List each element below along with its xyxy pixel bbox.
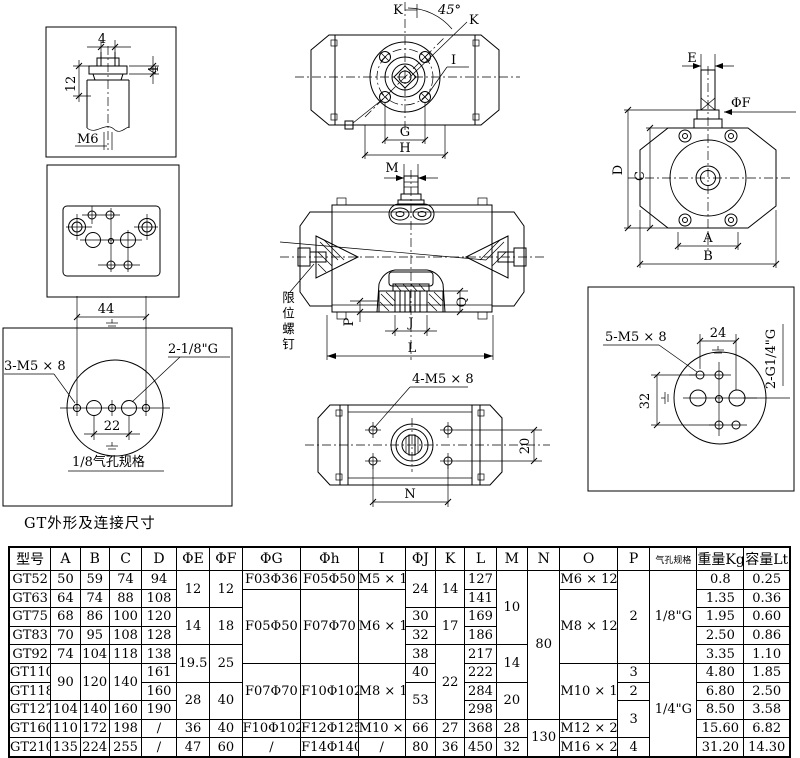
column-header: D bbox=[142, 547, 177, 571]
value-cell: 140 bbox=[109, 663, 141, 700]
value-cell: 27 bbox=[436, 719, 465, 738]
value-cell: 74 bbox=[109, 571, 141, 590]
dim-b: B bbox=[703, 249, 713, 264]
page-title: GT外形及连接尺寸 bbox=[24, 512, 156, 533]
value-cell: 15.60 bbox=[697, 719, 744, 738]
value-cell: 0.86 bbox=[744, 626, 790, 645]
column-header: M bbox=[496, 547, 527, 571]
value-cell: M12 × 20 bbox=[560, 719, 618, 738]
dim-q: Q bbox=[455, 297, 470, 308]
value-cell: 118 bbox=[109, 645, 141, 664]
model-cell: GT210 bbox=[9, 738, 51, 757]
value-cell: M5 × 10 bbox=[358, 571, 405, 590]
value-cell: 20 bbox=[496, 682, 527, 719]
value-cell: 19.5 bbox=[176, 645, 209, 682]
column-header: ΦF bbox=[210, 547, 242, 571]
value-cell: 120 bbox=[80, 663, 109, 700]
value-cell: / bbox=[242, 738, 301, 757]
value-cell: 17 bbox=[436, 608, 465, 645]
value-cell: 127 bbox=[465, 571, 496, 590]
value-cell: 138 bbox=[142, 645, 177, 664]
value-cell: 6.82 bbox=[744, 719, 790, 738]
value-cell: 141 bbox=[465, 589, 496, 608]
value-cell: 95 bbox=[80, 626, 109, 645]
value-cell: 450 bbox=[465, 738, 496, 757]
value-cell: 3 bbox=[617, 663, 649, 682]
drawing-end-view: E ΦF D C bbox=[598, 50, 798, 280]
table-row: GT52505974941212F03Φ36F05Φ50M5 × 1024141… bbox=[9, 571, 790, 590]
value-cell: 40 bbox=[405, 663, 435, 682]
value-cell: M10 × 16 bbox=[560, 663, 618, 719]
model-cell: GT75 bbox=[9, 608, 51, 627]
value-cell: M6 × 12 bbox=[560, 571, 618, 590]
column-header: C bbox=[109, 547, 141, 571]
value-cell: 100 bbox=[109, 608, 141, 627]
table-header: 型号ABCDΦEΦFΦGΦhIΦJKLMNOP气孔规格重量Kg容量Lt bbox=[9, 547, 790, 571]
value-cell: F14Φ140 bbox=[301, 738, 359, 757]
dim-h: H bbox=[399, 141, 410, 156]
value-cell: 18 bbox=[210, 608, 242, 645]
value-cell: 12 bbox=[176, 571, 209, 608]
value-cell: 222 bbox=[465, 663, 496, 682]
value-cell: F07Φ70 bbox=[242, 663, 301, 719]
dim-d: D bbox=[611, 165, 626, 175]
value-cell: 22 bbox=[436, 645, 465, 719]
value-cell: 40 bbox=[210, 719, 242, 738]
value-cell: 1.95 bbox=[697, 608, 744, 627]
value-cell: 224 bbox=[80, 738, 109, 757]
value-cell: 2 bbox=[617, 682, 649, 701]
value-cell: 161 bbox=[142, 663, 177, 682]
column-header: B bbox=[80, 547, 109, 571]
dim-32: 32 bbox=[638, 393, 653, 410]
value-cell: 1.10 bbox=[744, 645, 790, 664]
value-cell: 50 bbox=[51, 571, 80, 590]
header-row: 型号ABCDΦEΦFΦGΦhIΦJKLMNOP气孔规格重量Kg容量Lt bbox=[9, 547, 790, 571]
column-header: P bbox=[617, 547, 649, 571]
value-cell: 60 bbox=[210, 738, 242, 757]
column-header: Φh bbox=[301, 547, 359, 571]
dim-f: ΦF bbox=[731, 96, 751, 111]
value-cell: 88 bbox=[109, 589, 141, 608]
value-cell: M10 × 16 bbox=[358, 719, 405, 738]
table-body: GT52505974941212F03Φ36F05Φ50M5 × 1024141… bbox=[9, 571, 790, 757]
value-cell: 32 bbox=[496, 738, 527, 757]
dim-n: N bbox=[404, 487, 415, 502]
value-cell: 30 bbox=[405, 608, 435, 627]
drawing-air-ports-large: 24 32 5-M5 × 8 2-G1/4"G bbox=[585, 284, 797, 494]
value-cell: M16 × 25 bbox=[560, 738, 618, 757]
dim-44: 44 bbox=[98, 302, 115, 317]
datasheet-page: 4 12 4 M6 bbox=[0, 0, 800, 758]
port-spec-label: 2-1/8"G bbox=[168, 342, 218, 357]
value-cell: 24 bbox=[405, 571, 435, 608]
value-cell: 40 bbox=[210, 682, 242, 719]
model-cell: GT83 bbox=[9, 626, 51, 645]
value-cell: 0.25 bbox=[744, 571, 790, 590]
value-cell: 2.50 bbox=[697, 626, 744, 645]
value-cell: 70 bbox=[51, 626, 80, 645]
dim-20: 20 bbox=[518, 438, 533, 455]
value-cell: 0.60 bbox=[744, 608, 790, 627]
value-cell: 4.80 bbox=[697, 663, 744, 682]
dim-l: L bbox=[408, 341, 417, 356]
value-cell: 0.8 bbox=[697, 571, 744, 590]
dim-g: G bbox=[400, 125, 410, 140]
value-cell: 53 bbox=[405, 682, 435, 719]
dim-k: K bbox=[393, 3, 403, 18]
value-cell: 28 bbox=[176, 682, 209, 719]
value-cell: F03Φ36 bbox=[242, 571, 301, 590]
value-cell: / bbox=[142, 719, 177, 738]
value-cell: 3.58 bbox=[744, 701, 790, 720]
value-cell: 36 bbox=[176, 719, 209, 738]
angle-45: 45° bbox=[437, 3, 461, 18]
value-cell: M8 × 12 bbox=[358, 663, 405, 719]
column-header: I bbox=[358, 547, 405, 571]
value-cell: 368 bbox=[465, 719, 496, 738]
drawing-shaft-top-detail: 4 12 4 M6 bbox=[45, 26, 177, 158]
value-cell: F12Φ125 bbox=[301, 719, 359, 738]
value-cell: F05Φ50 bbox=[242, 589, 301, 663]
value-cell: 3 bbox=[617, 701, 649, 738]
model-cell: GT92 bbox=[9, 645, 51, 664]
value-cell: M6 × 10 bbox=[358, 589, 405, 663]
spec-table: 型号ABCDΦEΦFΦGΦhIΦJKLMNOP气孔规格重量Kg容量Lt GT52… bbox=[8, 546, 791, 758]
value-cell: 12 bbox=[210, 571, 242, 608]
column-header: ΦG bbox=[242, 547, 301, 571]
value-cell: 1.35 bbox=[697, 589, 744, 608]
value-cell: / bbox=[142, 738, 177, 757]
value-cell: 14 bbox=[176, 608, 209, 645]
value-cell: 2.50 bbox=[744, 682, 790, 701]
value-cell: 14.30 bbox=[744, 738, 790, 757]
value-cell: 298 bbox=[465, 701, 496, 720]
value-cell: F07Φ70 bbox=[301, 589, 359, 663]
value-cell: 1/4"G bbox=[650, 663, 697, 756]
value-cell: 110 bbox=[51, 719, 80, 738]
value-cell: 130 bbox=[528, 719, 560, 757]
dim-a: A bbox=[702, 231, 713, 246]
dim-j: J bbox=[406, 316, 413, 331]
drawing-mount-plate bbox=[46, 164, 180, 298]
value-cell: 64 bbox=[51, 589, 80, 608]
value-cell: 59 bbox=[80, 571, 109, 590]
model-cell: GT118 bbox=[9, 682, 51, 701]
value-cell: 0.36 bbox=[744, 589, 790, 608]
drawing-top-view: K 45° K I G H bbox=[295, 2, 520, 160]
value-cell: 160 bbox=[109, 701, 141, 720]
screw-spec-label: 4-M5 × 8 bbox=[412, 372, 474, 387]
value-cell: / bbox=[358, 738, 405, 757]
model-cell: GT52 bbox=[9, 571, 51, 590]
value-cell: 172 bbox=[80, 719, 109, 738]
value-cell: 1.85 bbox=[744, 663, 790, 682]
model-cell: GT160 bbox=[9, 719, 51, 738]
value-cell: 4 bbox=[617, 738, 649, 757]
dim-flange-4: 4 bbox=[147, 66, 162, 74]
value-cell: 38 bbox=[405, 645, 435, 664]
value-cell: F05Φ50 bbox=[301, 571, 359, 590]
dim-height-12: 12 bbox=[64, 76, 79, 93]
value-cell: 31.20 bbox=[697, 738, 744, 757]
value-cell: 190 bbox=[142, 701, 177, 720]
value-cell: 3.35 bbox=[697, 645, 744, 664]
value-cell: 74 bbox=[51, 645, 80, 664]
column-header: K bbox=[436, 547, 465, 571]
value-cell: F10Φ102 bbox=[301, 663, 359, 719]
value-cell: 108 bbox=[142, 589, 177, 608]
dim-slot-width: 4 bbox=[98, 32, 106, 47]
column-header: 容量Lt bbox=[744, 547, 790, 571]
value-cell: 94 bbox=[142, 571, 177, 590]
symmetry-mark bbox=[106, 442, 118, 449]
value-cell: 120 bbox=[142, 608, 177, 627]
value-cell: 140 bbox=[80, 701, 109, 720]
screw-spec-label: 3-M5 × 8 bbox=[4, 359, 66, 374]
model-cell: GT110 bbox=[9, 663, 51, 682]
dim-m: M bbox=[385, 161, 398, 176]
symmetry-mark bbox=[661, 392, 668, 404]
value-cell: 66 bbox=[405, 719, 435, 738]
value-cell: 104 bbox=[51, 701, 80, 720]
drawing-front-view: M bbox=[280, 160, 550, 370]
table-row: GT11090120140161F07Φ70F10Φ102M8 × 124022… bbox=[9, 663, 790, 682]
drawing-bottom-view: 4-M5 × 8 20 N bbox=[300, 370, 570, 515]
port-size-caption: 1/8气孔规格 bbox=[72, 454, 145, 470]
value-cell: 198 bbox=[109, 719, 141, 738]
value-cell: 80 bbox=[405, 738, 435, 757]
column-header: 型号 bbox=[9, 547, 51, 571]
dim-c: C bbox=[633, 171, 648, 181]
value-cell: 8.50 bbox=[697, 701, 744, 720]
value-cell: 90 bbox=[51, 663, 80, 700]
value-cell: 284 bbox=[465, 682, 496, 701]
value-cell: 14 bbox=[496, 645, 527, 682]
value-cell: 80 bbox=[528, 571, 560, 720]
value-cell: 28 bbox=[496, 719, 527, 738]
value-cell: 32 bbox=[405, 626, 435, 645]
port-spec-label: 2-G1/4"G bbox=[764, 329, 779, 389]
value-cell: 25 bbox=[210, 645, 242, 682]
value-cell: 14 bbox=[436, 571, 465, 608]
value-cell: 47 bbox=[176, 738, 209, 757]
column-header: A bbox=[51, 547, 80, 571]
column-header: L bbox=[465, 547, 496, 571]
value-cell: F10Φ102 bbox=[242, 719, 301, 738]
value-cell: 160 bbox=[142, 682, 177, 701]
column-header: N bbox=[528, 547, 560, 571]
column-header: 重量Kg bbox=[697, 547, 744, 571]
dim-e: E bbox=[687, 51, 697, 66]
value-cell: 255 bbox=[109, 738, 141, 757]
screw-spec-label: 5-M5 × 8 bbox=[605, 330, 667, 345]
drawing-air-ports-small: 44 3-M5 × 8 2-1/8"G 22 1/8气孔规格 bbox=[2, 296, 234, 508]
value-cell: 6.80 bbox=[697, 682, 744, 701]
limit-screw-label: 限位螺钉 bbox=[281, 291, 294, 353]
thread-label-m6: M6 bbox=[77, 132, 99, 147]
value-cell: 217 bbox=[465, 645, 496, 664]
value-cell: 169 bbox=[465, 608, 496, 627]
model-cell: GT63 bbox=[9, 589, 51, 608]
value-cell: 74 bbox=[80, 589, 109, 608]
column-header: 气孔规格 bbox=[650, 547, 697, 571]
value-cell: 36 bbox=[436, 738, 465, 757]
value-cell: M8 × 12 bbox=[560, 589, 618, 663]
value-cell: 1/8"G bbox=[650, 571, 697, 664]
value-cell: 10 bbox=[496, 571, 527, 645]
symmetry-mark bbox=[106, 319, 118, 326]
value-cell: 2 bbox=[617, 571, 649, 664]
value-cell: 186 bbox=[465, 626, 496, 645]
value-cell: 108 bbox=[109, 626, 141, 645]
value-cell: 128 bbox=[142, 626, 177, 645]
column-header: ΦJ bbox=[405, 547, 435, 571]
label-i: I bbox=[451, 53, 456, 68]
column-header: O bbox=[560, 547, 618, 571]
dim-p: P bbox=[342, 317, 357, 326]
column-header: ΦE bbox=[176, 547, 209, 571]
value-cell: 135 bbox=[51, 738, 80, 757]
dim-22: 22 bbox=[104, 419, 121, 434]
dim-k2: K bbox=[469, 13, 479, 28]
value-cell: 68 bbox=[51, 608, 80, 627]
model-cell: GT127 bbox=[9, 701, 51, 720]
value-cell: 86 bbox=[80, 608, 109, 627]
dim-24: 24 bbox=[710, 326, 727, 341]
value-cell: 104 bbox=[80, 645, 109, 664]
